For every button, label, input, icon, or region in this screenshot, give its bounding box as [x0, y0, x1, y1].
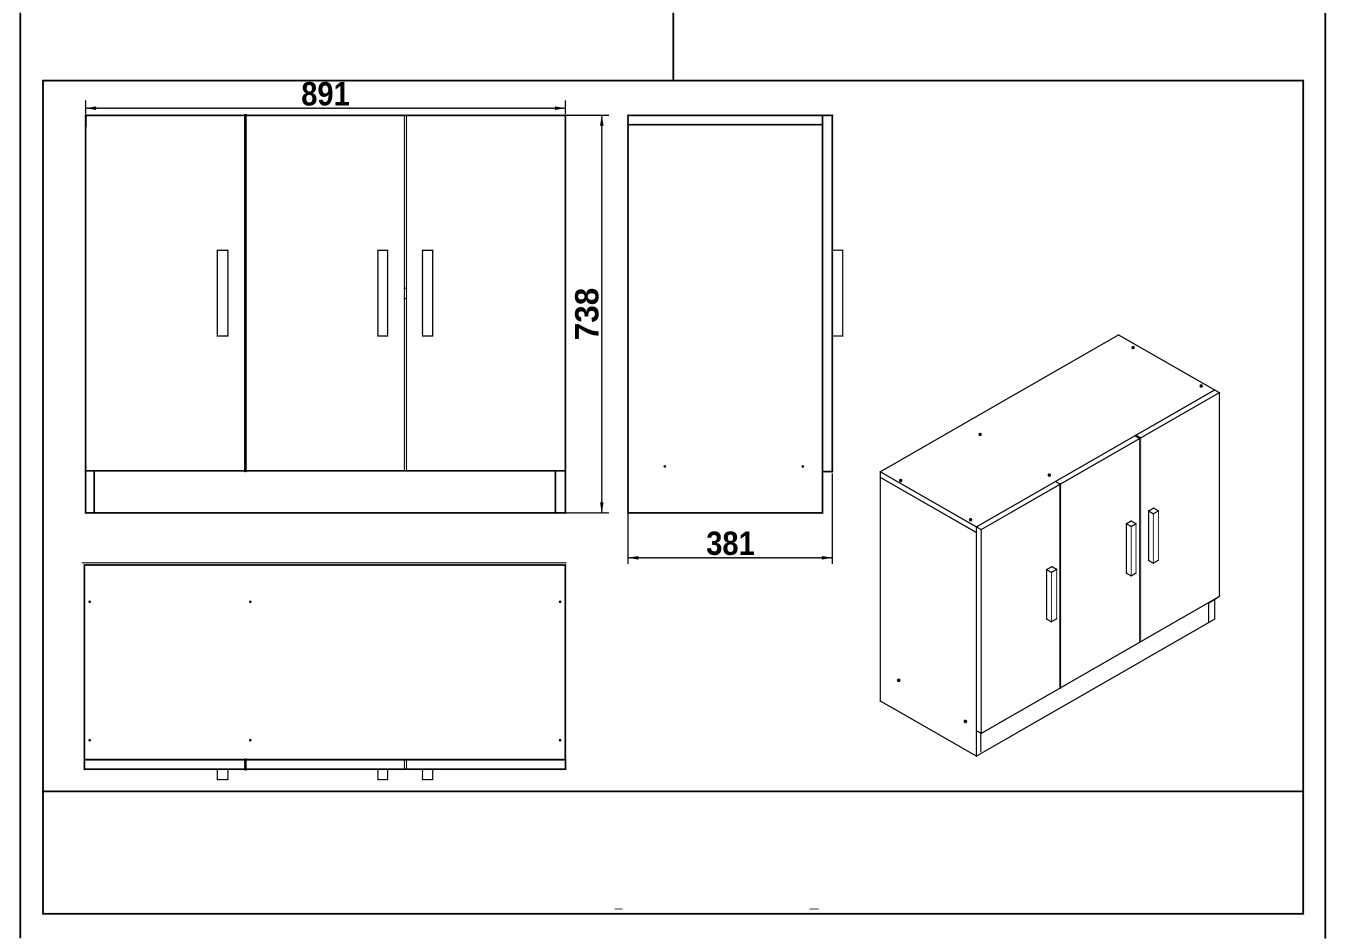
svg-text:738: 738	[569, 288, 607, 341]
svg-text:891: 891	[301, 75, 350, 113]
svg-text:381: 381	[706, 525, 755, 563]
